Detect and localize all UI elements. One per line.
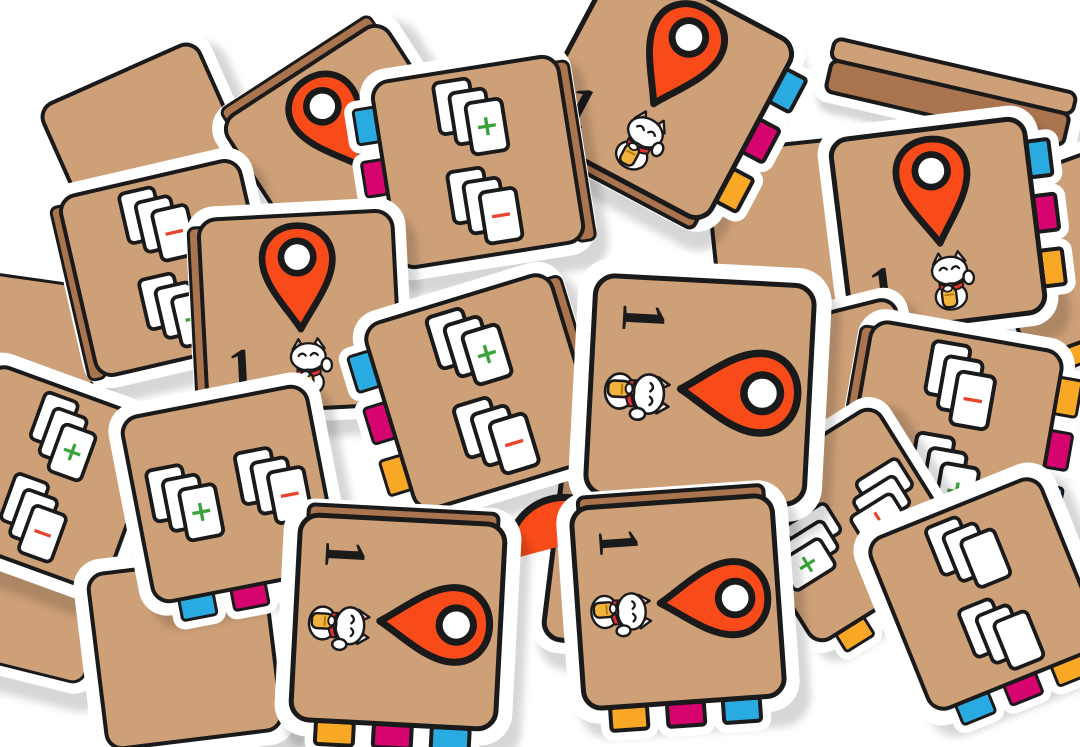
minus-symbol: −	[487, 200, 515, 232]
card-front: −	[486, 410, 543, 477]
lucky-cat-icon	[921, 248, 980, 314]
card-front: −	[947, 369, 998, 433]
lucky-cat	[306, 596, 372, 654]
plus-symbol: +	[471, 337, 503, 373]
map-pin	[648, 546, 778, 653]
plus-symbol: +	[790, 548, 825, 581]
card-stack-icon: −	[450, 385, 542, 485]
tile-content: 1	[568, 492, 788, 712]
card-stack-icon: −	[918, 338, 1003, 432]
lucky-cat-icon	[588, 583, 653, 641]
tile-pile-scene: 1 1 1	[0, 0, 1080, 747]
card-stack-icon: +	[423, 296, 515, 396]
tile-content: 1	[582, 272, 817, 507]
map-pin-icon	[248, 217, 349, 341]
map-pin-icon	[879, 127, 989, 258]
map-pin	[879, 127, 989, 258]
map-pin	[368, 570, 499, 677]
card-front: +	[463, 96, 512, 157]
card-stack-icon	[955, 585, 1047, 684]
minus-symbol: −	[958, 384, 988, 418]
card-stack-icon: −	[444, 160, 525, 250]
plus-symbol: +	[473, 110, 501, 142]
plus-symbol: +	[187, 496, 216, 529]
map-pin-icon	[668, 335, 808, 449]
lucky-cat	[588, 583, 653, 641]
lucky-cat-icon	[602, 363, 672, 425]
card-front: −	[477, 185, 526, 246]
card-front: +	[176, 481, 226, 543]
game-tile-pin-center-front: 1	[582, 272, 817, 507]
plus-symbol: +	[56, 436, 87, 470]
tile-number: 1	[588, 526, 648, 559]
card-stack-icon	[922, 503, 1014, 602]
minus-symbol: −	[160, 216, 189, 249]
tile-face: 1	[288, 512, 509, 733]
map-pin	[668, 335, 808, 449]
minus-symbol: −	[27, 517, 58, 551]
map-pin	[248, 217, 349, 341]
game-tile-pin-bottom-right: 1	[568, 492, 788, 712]
tile-number: 1	[611, 300, 675, 335]
minus-symbol: −	[498, 426, 530, 462]
tile-number: 1	[315, 538, 375, 570]
tile-face: 1	[582, 272, 817, 507]
map-pin-icon	[648, 546, 778, 653]
lucky-cat	[921, 248, 980, 314]
map-pin-icon	[368, 570, 499, 677]
tile-content: 1	[288, 512, 509, 733]
tile-face: 1	[568, 492, 788, 712]
card-front: +	[459, 321, 516, 388]
card-stack-icon: −	[0, 470, 78, 565]
lucky-cat	[602, 363, 672, 425]
game-tile-pin-bottom-front: 1	[288, 512, 509, 733]
card-stack-icon: +	[19, 389, 108, 484]
lucky-cat-icon	[306, 596, 372, 654]
card-stack-icon: +	[430, 71, 511, 161]
card-stack-icon: +	[143, 457, 226, 549]
